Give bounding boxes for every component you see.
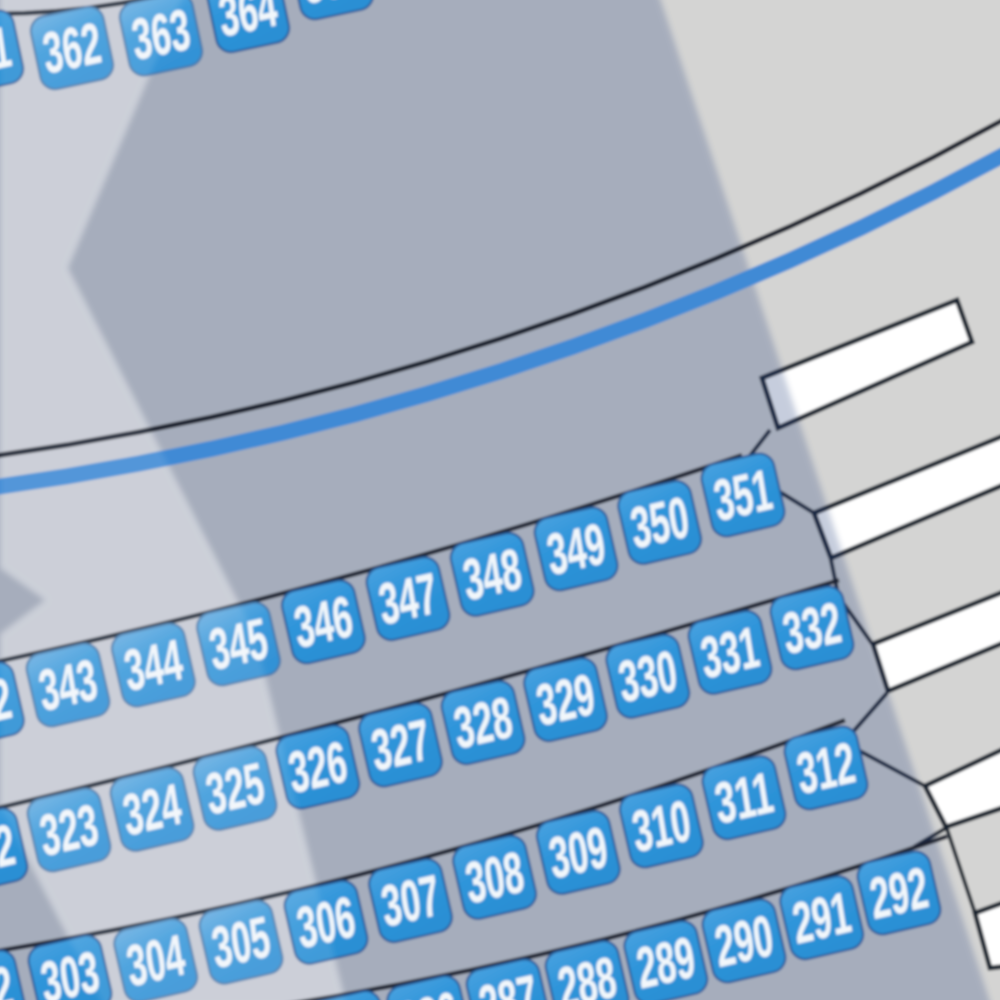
svg-text:328: 328 [450, 685, 517, 762]
svg-text:348: 348 [459, 536, 526, 613]
svg-text:289: 289 [633, 924, 700, 1000]
svg-text:329: 329 [532, 662, 599, 739]
svg-text:292: 292 [866, 855, 933, 932]
svg-text:327: 327 [367, 707, 434, 784]
svg-text:311: 311 [711, 760, 778, 837]
svg-text:347: 347 [375, 561, 442, 638]
svg-text:351: 351 [710, 457, 777, 534]
svg-text:291: 291 [788, 880, 855, 957]
svg-text:350: 350 [626, 484, 693, 561]
svg-text:309: 309 [545, 814, 612, 891]
svg-text:307: 307 [377, 863, 444, 940]
svg-text:346: 346 [290, 584, 357, 661]
svg-text:326: 326 [285, 729, 352, 806]
svg-text:330: 330 [615, 638, 682, 715]
svg-text:331: 331 [697, 614, 764, 691]
svg-text:310: 310 [628, 788, 695, 865]
svg-text:312: 312 [793, 730, 860, 807]
svg-text:332: 332 [779, 590, 846, 667]
svg-text:349: 349 [543, 511, 610, 588]
svg-text:308: 308 [461, 839, 528, 916]
svg-text:290: 290 [711, 903, 778, 980]
